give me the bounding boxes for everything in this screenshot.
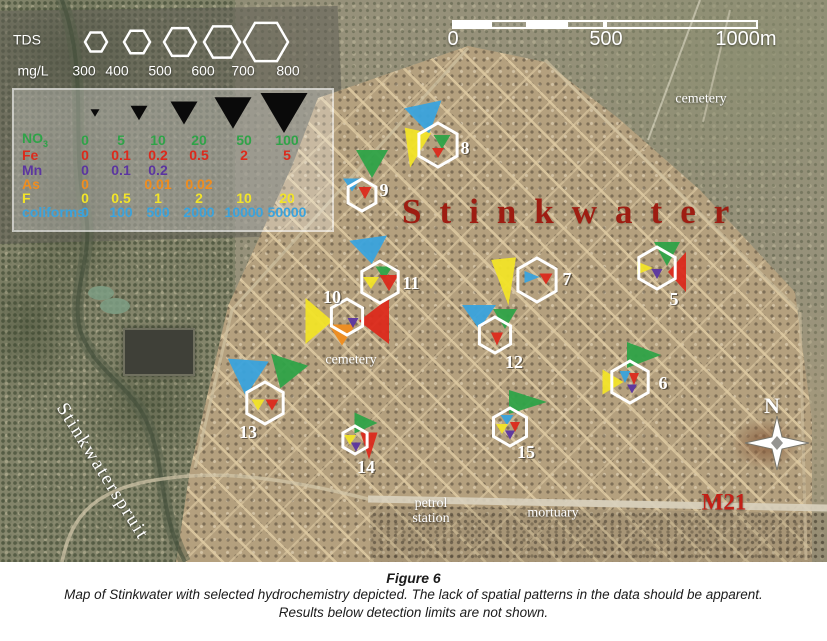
triangle-coliforms (525, 271, 540, 283)
triangle-NO3 (627, 342, 661, 368)
triangle-F (252, 400, 265, 411)
triangle-Fe (359, 187, 372, 199)
site-number-10: 10 (323, 287, 341, 307)
triangle-Mn (505, 431, 515, 440)
triangle-NO3 (356, 150, 388, 178)
triangle-F (363, 277, 379, 289)
tds-hexagon-4 (244, 23, 288, 61)
triangle-Fe (629, 373, 639, 385)
tds-hexagon-2 (164, 28, 196, 56)
site-marker-15: 1515 (494, 390, 548, 463)
site-number-14: 14 (357, 457, 375, 477)
caption-line-2: Results below detection limits are not s… (0, 604, 827, 622)
site-marker-11: 1111 (349, 235, 420, 303)
site-marker-6: 66 (603, 342, 669, 403)
legend-size-triangle-3 (215, 97, 252, 128)
site-number-7: 7 (563, 269, 572, 289)
legend-size-triangle-2 (171, 102, 198, 125)
site-number-11: 11 (402, 273, 419, 293)
stinkwater-map: 5566778899101011111212131314141515 Stink… (0, 0, 827, 562)
scalebar-segment-4 (605, 20, 758, 29)
scalebar-segment-1 (490, 20, 528, 29)
caption-line-1: Map of Stinkwater with selected hydroche… (0, 586, 827, 604)
triangle-NO3 (262, 354, 308, 395)
site-hexagon-7 (518, 258, 556, 302)
site-marker-13: 1313 (225, 354, 308, 443)
figure-page: 5566778899101011111212131314141515 Stink… (0, 0, 827, 641)
markers-overlay: 5566778899101011111212131314141515 (0, 0, 827, 562)
legend-size-triangle-1 (131, 106, 148, 120)
scale-bar (452, 20, 758, 29)
triangle-Fe (361, 433, 378, 460)
site-number-9: 9 (380, 180, 389, 200)
site-number-8: 8 (461, 138, 470, 158)
figure-label: Figure 6 (0, 570, 827, 586)
tds-hexagon-3 (204, 26, 240, 57)
site-number-13: 13 (239, 422, 257, 442)
site-hexagon-13 (247, 382, 283, 424)
triangle-Mn (627, 385, 637, 394)
triangle-Mn (652, 269, 663, 279)
triangle-NO3 (434, 135, 451, 149)
triangle-Fe (380, 275, 399, 291)
site-number-6: 6 (659, 373, 668, 393)
site-marker-7: 77 (491, 257, 573, 306)
triangle-Fe (491, 333, 503, 346)
triangle-Fe (540, 274, 553, 285)
triangle-Fe (266, 400, 279, 411)
tds-hexagon-1 (124, 31, 150, 54)
scalebar-segment-2 (528, 20, 566, 29)
tds-hexagon-0 (85, 33, 107, 52)
scalebar-segment-3 (566, 20, 605, 29)
site-hexagon-8 (419, 123, 457, 167)
triangle-Fe (432, 148, 444, 158)
figure-caption: Figure 6 Map of Stinkwater with selected… (0, 562, 827, 641)
site-marker-12: 1212 (462, 305, 524, 373)
triangle-NO3 (355, 413, 378, 434)
triangle-F (397, 128, 431, 171)
site-marker-8: 88 (397, 100, 471, 170)
site-number-15: 15 (517, 442, 535, 462)
site-marker-9: 99 (343, 150, 390, 211)
site-marker-10: 1010 (306, 287, 390, 346)
scalebar-segment-0 (452, 20, 490, 29)
site-marker-14: 1414 (343, 413, 378, 479)
legend-size-triangle-4 (261, 93, 308, 133)
site-number-12: 12 (505, 352, 523, 372)
legend-size-triangle-0 (91, 109, 100, 117)
site-number-5: 5 (670, 289, 679, 309)
site-hexagon-9 (348, 179, 376, 211)
site-marker-5: 55 (637, 242, 686, 310)
